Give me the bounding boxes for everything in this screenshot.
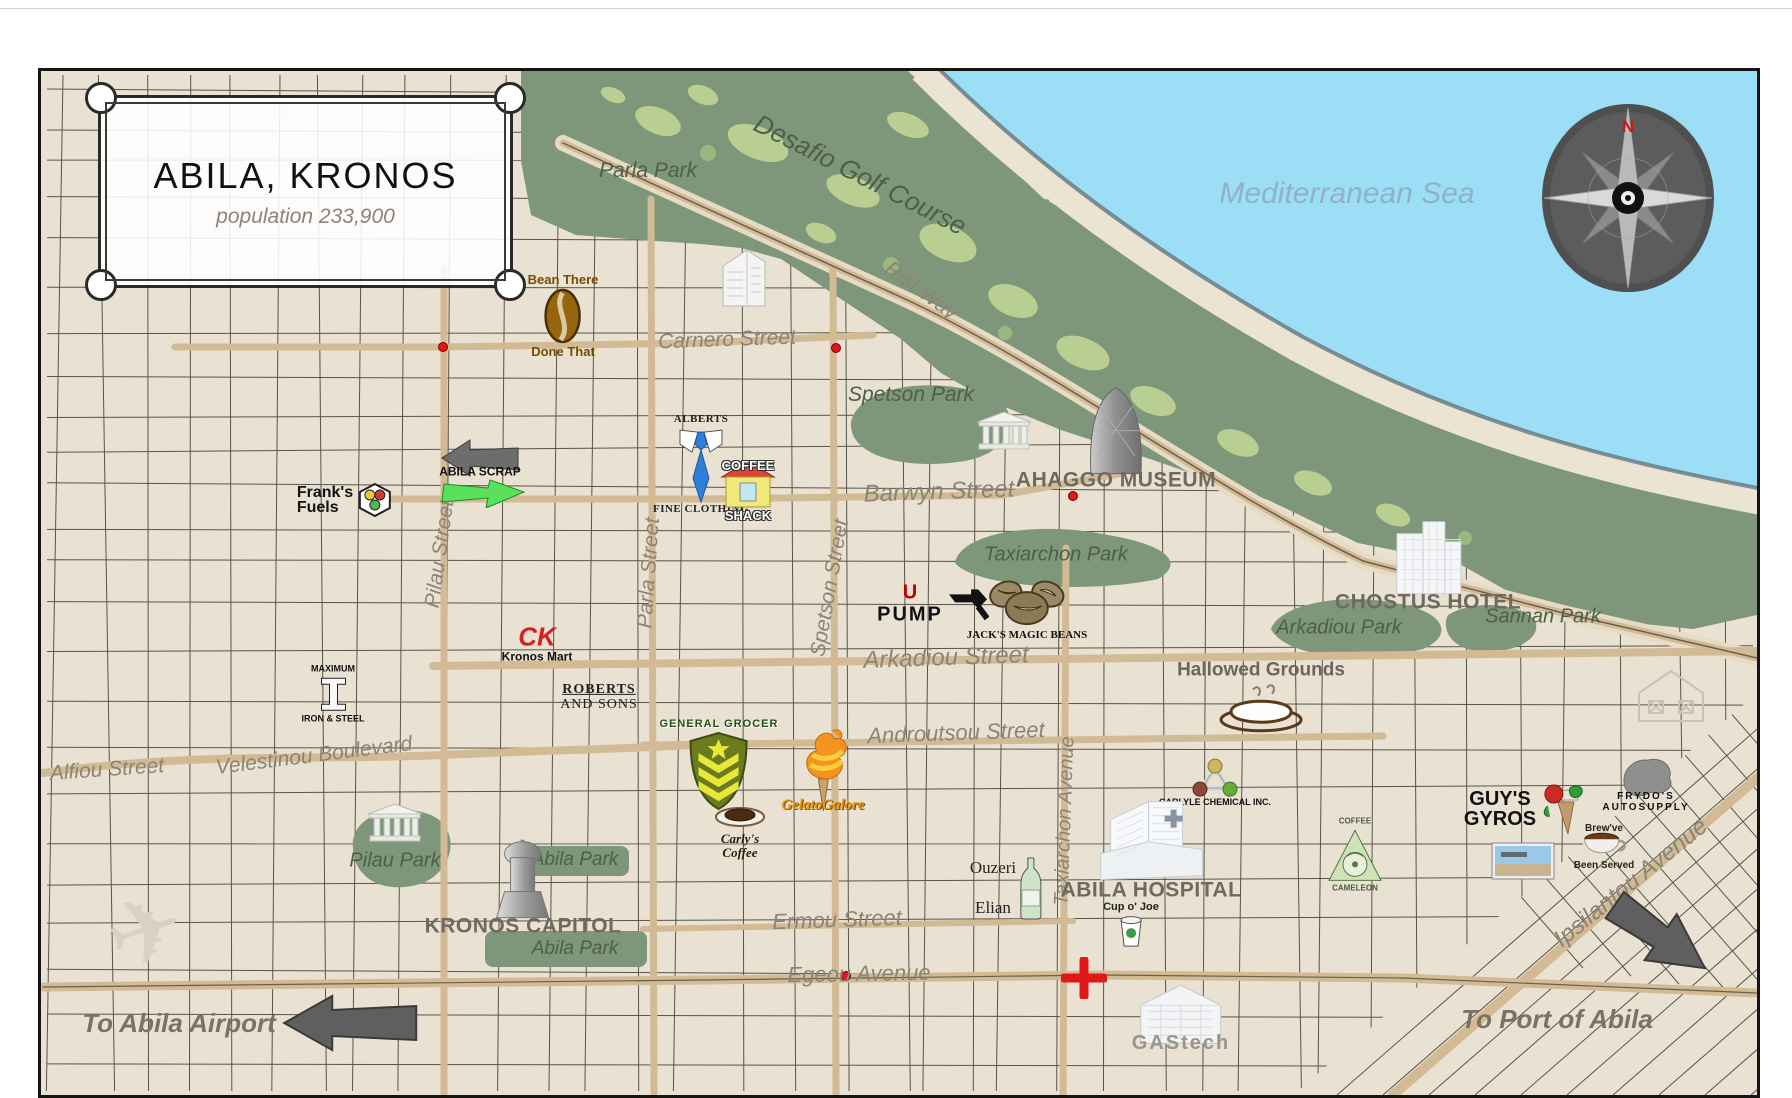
roberts-and-sons-label: AND SONS [560, 697, 638, 712]
ahaggo-museum: AHAGGO MUSEUM [1016, 386, 1216, 493]
brewve-been-served-label: Brew've [1585, 824, 1623, 835]
ahaggo-museum-icon [1085, 386, 1147, 478]
airplane-sketch-icon: ✈ [109, 920, 182, 944]
coffee-cameleon-label: CAMELEON [1332, 884, 1378, 893]
carlys-coffee-icon [714, 802, 766, 832]
bean-there-done-that-label: Bean There [528, 273, 599, 287]
abila-scrap-label: ABILA SCRAP [439, 466, 521, 479]
apartment-building-icon [717, 240, 771, 312]
window-top-border [0, 8, 1792, 9]
jacks-magic-beans: JACK'S MAGIC BEANS [967, 574, 1087, 642]
franks-fuels: Frank'sFuels [297, 482, 393, 518]
map-labels-layer: Mediterranean SeaDesafio Golf CourseRist… [41, 71, 1757, 1095]
carlys-coffee-label: Coffee [721, 846, 759, 860]
jacks-magic-beans-label: JACK'S MAGIC BEANS [967, 630, 1087, 642]
franks-fuels-label: Frank's [297, 485, 353, 500]
frydos-autosupply-label: AUTOSUPPLY [1602, 803, 1689, 814]
chostus-hotel-label: CHOSTUS HOTEL [1335, 592, 1521, 615]
abila-scrap: ABILA SCRAP [434, 436, 526, 508]
pilau-park-temple [366, 802, 424, 844]
coffee-cameleon: COFFEECAMELEON [1327, 817, 1383, 892]
hallowed-grounds-icon [1219, 681, 1303, 733]
abila-city-map: ABILA, KRONOS population 233,900 Mediter… [38, 68, 1760, 1098]
sea-label-mediterranean-sea: Mediterranean Sea [1219, 177, 1474, 211]
sketched-house-icon [1633, 663, 1709, 727]
coffee-cameleon-icon [1327, 826, 1383, 884]
street-label-carnero-street: Carnero Street [658, 326, 796, 355]
park-label-taxiarchon-park: Taxiarchon Park [984, 544, 1128, 567]
street-label-spetson-street: Spetson Street [806, 518, 854, 659]
guys-gyros-label: GUY'S [1464, 789, 1536, 809]
port-arrow [1597, 882, 1721, 990]
street-label-androutsou-street: Androutsou Street [867, 717, 1045, 749]
street-label-ermou-street: Ermou Street [772, 905, 902, 936]
to-abila-airport-label: To Abila Airport [82, 1009, 276, 1037]
museum-temple [975, 410, 1033, 452]
maximum-iron-steel-label: MAXIMUM [311, 664, 355, 674]
kronos-mart: CKKronos Mart [502, 622, 573, 663]
gelatogalore-label: GelatoGalore [781, 797, 864, 813]
gastech-label: GAStech [1132, 1033, 1230, 1055]
compass-rose-icon: N [1540, 100, 1716, 296]
gelatogalore: GelatoGalore [781, 725, 864, 813]
ouzeri-elian-icon [1020, 856, 1042, 920]
museum-temple-icon [975, 410, 1033, 452]
kronos-capitol-label: KRONOS CAPITOL [425, 916, 622, 939]
coffee-cameleon-label: COFFEE [1339, 817, 1371, 826]
to-abila-airport-icon [280, 992, 420, 1054]
pilau-park-temple-icon [366, 802, 424, 844]
apartment-building [717, 240, 771, 312]
chostus-hotel-icon [1391, 516, 1465, 600]
chostus-hotel: CHOSTUS HOTEL [1335, 516, 1521, 615]
hallowed-grounds: Hallowed Grounds [1177, 661, 1345, 734]
street-label-egeou-avenue: Egeou Avenue [787, 960, 931, 988]
u-pump-label: U [877, 582, 943, 604]
coffee-shack: COFFEESHACK [720, 459, 776, 523]
ouzeri-elian: OuzeriElian [970, 856, 1042, 920]
maximum-iron-steel: MAXIMUMIRON & STEEL [301, 664, 364, 723]
abila-hospital: ABILA HOSPITAL [1061, 784, 1242, 903]
street-label-arkadiou-street: Arkadiou Street [863, 641, 1029, 675]
storefront-photo-icon [1491, 842, 1555, 880]
maximum-iron-steel-label: IRON & STEEL [301, 714, 364, 724]
to-port-of-abila: To Port of Abila [1461, 1005, 1653, 1033]
franks-fuels-label: Fuels [297, 500, 353, 515]
bean-there-done-that: Bean ThereDone That [528, 273, 599, 359]
coffee-shack-label: COFFEE [722, 459, 775, 473]
kronos-mart-label: CK [518, 622, 556, 650]
emergency-cross-icon [1061, 957, 1107, 999]
sketched-house [1633, 663, 1709, 727]
brewve-been-served: Brew'veBeen Served [1574, 824, 1635, 872]
roberts-and-sons: ROBERTSAND SONS [560, 682, 638, 712]
coffee-shack-label: SHACK [725, 509, 771, 523]
general-grocer: GENERAL GROCER [660, 719, 779, 811]
cup-o-joe: Cup o' Joe [1103, 902, 1159, 948]
guys-gyros-label: GYROS [1464, 809, 1536, 829]
kronos-capitol: KRONOS CAPITOL [425, 838, 622, 939]
franks-fuels-icon [357, 482, 393, 518]
alberts-fine-clothing-icon [678, 426, 724, 504]
roberts-and-sons-label: ROBERTS [560, 682, 638, 697]
u-pump-label: PUMP [877, 604, 943, 626]
street-label-parla-street: Parla Street [633, 517, 665, 629]
street-label-barwyn-street: Barwyn Street [863, 475, 1015, 508]
to-port-of-abila-label: To Port of Abila [1461, 1005, 1653, 1033]
street-label-rist-way: Rist Way [880, 257, 962, 326]
emergency-cross [1061, 957, 1107, 999]
ouzeri-elian-label: Ouzeri [970, 859, 1016, 877]
park-label-parla-park: Parla Park [599, 159, 697, 183]
cup-o-joe-label: Cup o' Joe [1103, 902, 1159, 914]
ouzeri-elian-label: Elian [970, 899, 1016, 917]
street-label-pilau-street: Pilau Street [421, 499, 460, 610]
abila-hospital-icon [1091, 784, 1211, 888]
carlys-coffee: Carly'sCoffee [714, 802, 766, 860]
general-grocer-icon [689, 731, 749, 811]
carlys-coffee-label: Carly's [721, 832, 759, 846]
cup-o-joe-icon [1117, 914, 1145, 948]
gastech: GAStech [1132, 979, 1230, 1055]
park-label-abila-park: Abila Park [532, 938, 619, 960]
kronos-mart-label: Kronos Mart [502, 651, 573, 664]
bean-there-done-that-icon [541, 287, 585, 345]
frydos-autosupply: FRYDO'SAUTOSUPPLY [1602, 752, 1689, 814]
park-label-desafio-golf-course: Desafio Golf Course [749, 108, 972, 242]
storefront-photo [1491, 842, 1555, 880]
street-label-alfiou-street: Alfiou Street [49, 754, 165, 786]
street-label-velestinou-boulevard: Velestinou Boulevard [214, 732, 413, 780]
park-label-arkadiou-park: Arkadiou Park [1276, 617, 1402, 640]
abila-hospital-label: ABILA HOSPITAL [1061, 880, 1242, 903]
guys-gyros: GUY'SGYROS [1464, 780, 1588, 838]
ahaggo-museum-label: AHAGGO MUSEUM [1016, 470, 1216, 493]
hallowed-grounds-label: Hallowed Grounds [1177, 661, 1345, 682]
brewve-been-served-label: Been Served [1574, 861, 1635, 872]
kronos-capitol-icon [491, 838, 555, 924]
park-label-spetson-park: Spetson Park [848, 383, 974, 407]
alberts-fine-clothing-label: ALBERTS [674, 414, 728, 426]
compass-north-label: N [1622, 117, 1634, 136]
jacks-magic-beans-icon [984, 574, 1070, 630]
general-grocer-label: GENERAL GROCER [660, 719, 779, 731]
port-arrow-icon [1597, 882, 1721, 990]
bean-there-done-that-label: Done That [531, 345, 595, 359]
to-abila-airport: To Abila Airport [82, 992, 420, 1054]
maximum-iron-steel-icon [318, 674, 348, 714]
